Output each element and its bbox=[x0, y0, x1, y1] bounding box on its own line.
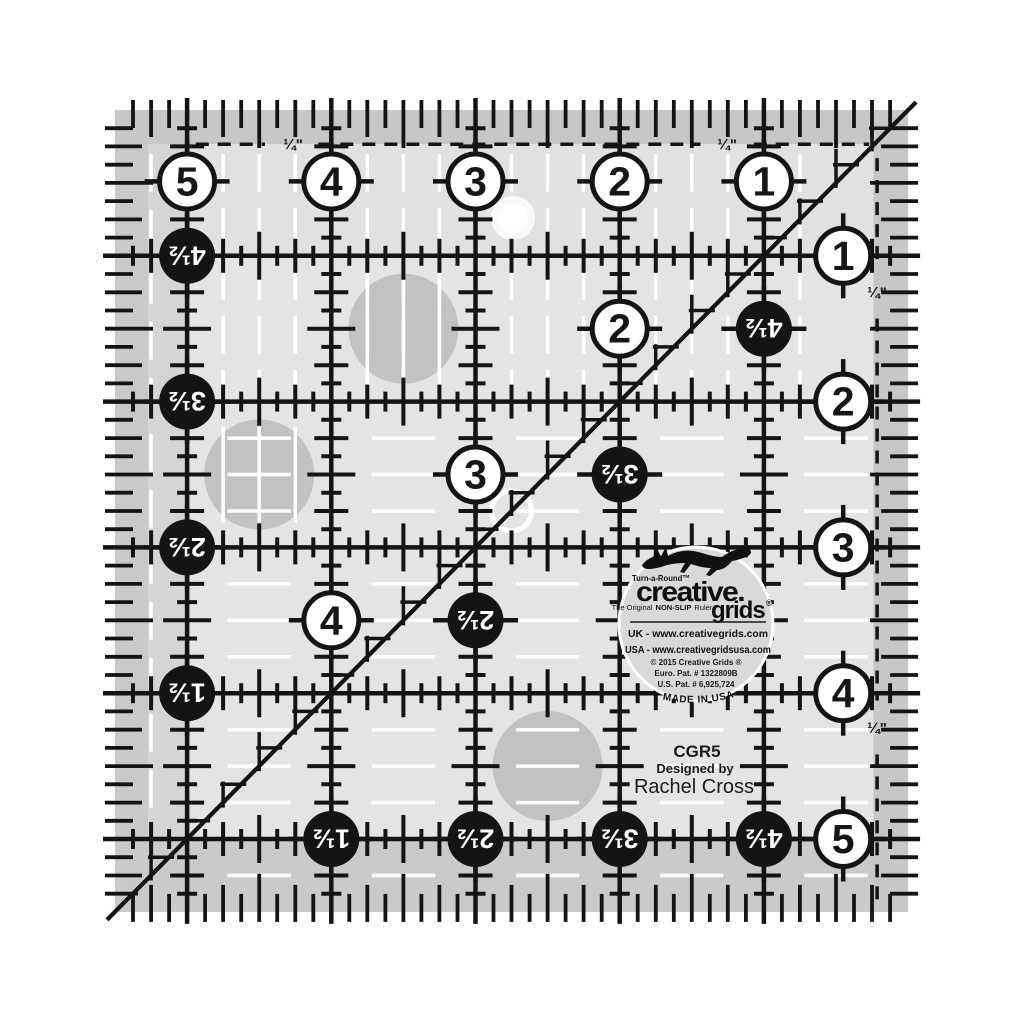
inch-number: 1 bbox=[832, 233, 855, 279]
measure-circle-black: 2½ bbox=[159, 519, 215, 575]
measure-circle-black: 4½ bbox=[159, 228, 215, 284]
inch-number: 4 bbox=[320, 158, 343, 204]
model-number: CGR5 bbox=[673, 742, 720, 761]
designer-name: Rachel Cross bbox=[634, 776, 754, 798]
logo-usa-url: USA - www.creativegridsusa.com bbox=[625, 644, 771, 656]
turnaround-number: 1½ bbox=[168, 678, 206, 708]
logo-brand-grids: grids® bbox=[711, 597, 773, 624]
measure-circle-white: 2 bbox=[816, 374, 871, 429]
measure-circle-black: 3½ bbox=[592, 447, 648, 503]
measure-circle-black: 3½ bbox=[592, 811, 648, 867]
measure-circle-white: 5 bbox=[816, 812, 871, 867]
ruler-graphic: ¼"¼"¼"¼" 5 4 3 2 1 1 2 3 4 5 2 3 bbox=[103, 98, 920, 924]
inch-number: 3 bbox=[464, 452, 487, 498]
measure-circle-white: 4 bbox=[816, 666, 871, 721]
measure-circle-white: 2 bbox=[592, 301, 647, 356]
quarter-inch-label: ¼" bbox=[283, 136, 303, 153]
measure-circle-black: 2½ bbox=[448, 811, 504, 867]
inch-number: 2 bbox=[608, 306, 631, 352]
measure-circle-black: 3½ bbox=[159, 374, 215, 430]
measure-circle-white: 1 bbox=[736, 154, 791, 209]
inch-number: 2 bbox=[608, 158, 631, 204]
inch-number: 4 bbox=[832, 670, 855, 716]
logo-uk-url: UK - www.creativegrids.com bbox=[628, 628, 768, 640]
inch-number: 4 bbox=[320, 597, 343, 643]
logo-tagline: The OriginalNON-SLIPRuler bbox=[612, 603, 713, 612]
inch-number: 5 bbox=[176, 158, 199, 204]
turnaround-number: 4½ bbox=[745, 824, 783, 854]
product-photo: ¼"¼"¼"¼" 5 4 3 2 1 1 2 3 4 5 2 3 bbox=[0, 0, 1024, 1024]
logo-euro-patent: Euro. Pat. # 1322809B bbox=[654, 669, 737, 678]
turnaround-number: 3½ bbox=[168, 386, 206, 416]
measure-circle-white: 3 bbox=[816, 520, 871, 575]
quilting-ruler: ¼"¼"¼"¼" 5 4 3 2 1 1 2 3 4 5 2 3 bbox=[0, 0, 1024, 1024]
measure-circle-white: 5 bbox=[160, 154, 215, 209]
measure-circle-white: 4 bbox=[304, 593, 359, 648]
turnaround-number: 2½ bbox=[457, 824, 495, 854]
logo-us-patent: U.S. Pat. # 6,925,724 bbox=[658, 680, 735, 689]
measure-circle-white: 1 bbox=[816, 228, 871, 283]
measure-circle-black: 2½ bbox=[448, 592, 504, 648]
turnaround-number: 3½ bbox=[601, 459, 639, 489]
designed-by-label: Designed by bbox=[656, 761, 734, 776]
quarter-inch-label: ¼" bbox=[717, 136, 737, 153]
measure-circle-black: 1½ bbox=[303, 811, 359, 867]
inch-number: 1 bbox=[752, 158, 775, 204]
inch-number: 3 bbox=[464, 158, 487, 204]
measure-circle-black: 4½ bbox=[736, 811, 792, 867]
turnaround-number: 4½ bbox=[745, 313, 783, 343]
measure-circle-black: 4½ bbox=[736, 301, 792, 357]
measure-circle-white: 4 bbox=[304, 154, 359, 209]
turnaround-number: 4½ bbox=[168, 240, 206, 270]
measure-circle-white: 3 bbox=[448, 154, 503, 209]
inch-number: 2 bbox=[832, 379, 855, 425]
turnaround-number: 2½ bbox=[168, 532, 206, 562]
measure-circle-white: 2 bbox=[592, 154, 647, 209]
turnaround-number: 1½ bbox=[313, 824, 351, 854]
logo-copyright: © 2015 Creative Grids ® bbox=[651, 658, 742, 667]
inch-number: 5 bbox=[832, 816, 855, 862]
measure-circle-white: 3 bbox=[448, 447, 503, 502]
turnaround-number: 3½ bbox=[601, 824, 639, 854]
turnaround-number: 2½ bbox=[457, 605, 495, 635]
inch-number: 3 bbox=[832, 524, 855, 570]
measure-circle-black: 1½ bbox=[159, 665, 215, 721]
